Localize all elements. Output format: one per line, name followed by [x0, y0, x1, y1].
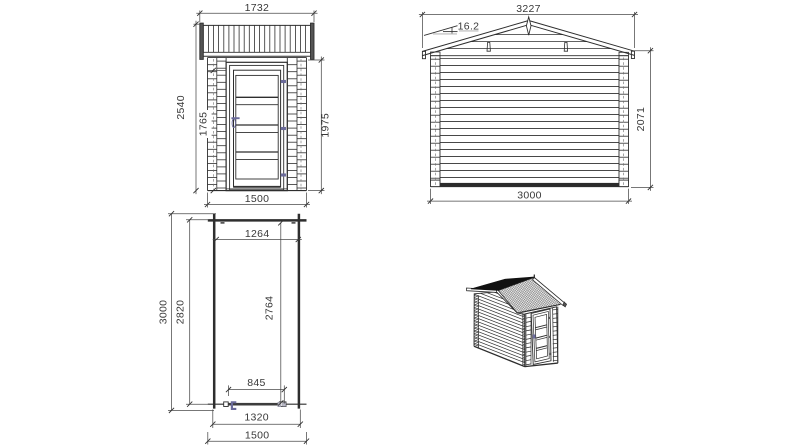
svg-text:3000: 3000	[157, 300, 169, 325]
svg-text:16.2: 16.2	[458, 21, 480, 33]
svg-text:3227: 3227	[516, 3, 541, 15]
svg-text:1500: 1500	[245, 193, 270, 205]
svg-text:1500: 1500	[245, 430, 270, 442]
svg-text:1975: 1975	[319, 113, 331, 138]
svg-text:1264: 1264	[245, 228, 270, 240]
svg-text:1765: 1765	[198, 112, 210, 137]
svg-text:2820: 2820	[174, 300, 186, 325]
svg-text:2071: 2071	[635, 107, 647, 132]
svg-text:3000: 3000	[517, 190, 542, 202]
svg-text:1320: 1320	[244, 412, 269, 424]
svg-text:845: 845	[247, 377, 265, 389]
svg-text:2764: 2764	[263, 296, 275, 321]
svg-text:1732: 1732	[245, 2, 270, 14]
svg-text:2540: 2540	[175, 95, 187, 120]
